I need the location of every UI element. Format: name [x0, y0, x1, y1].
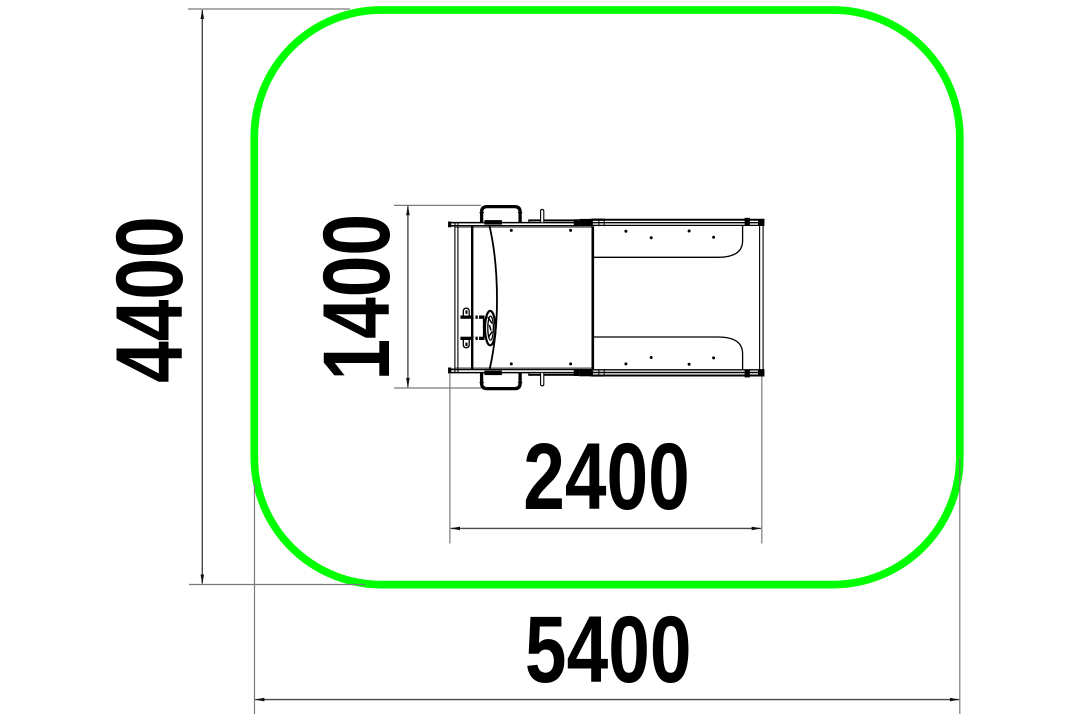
svg-text:1400: 1400	[305, 214, 411, 381]
svg-text:2400: 2400	[523, 425, 690, 531]
svg-text:5400: 5400	[525, 598, 692, 704]
svg-text:4400: 4400	[97, 216, 203, 383]
